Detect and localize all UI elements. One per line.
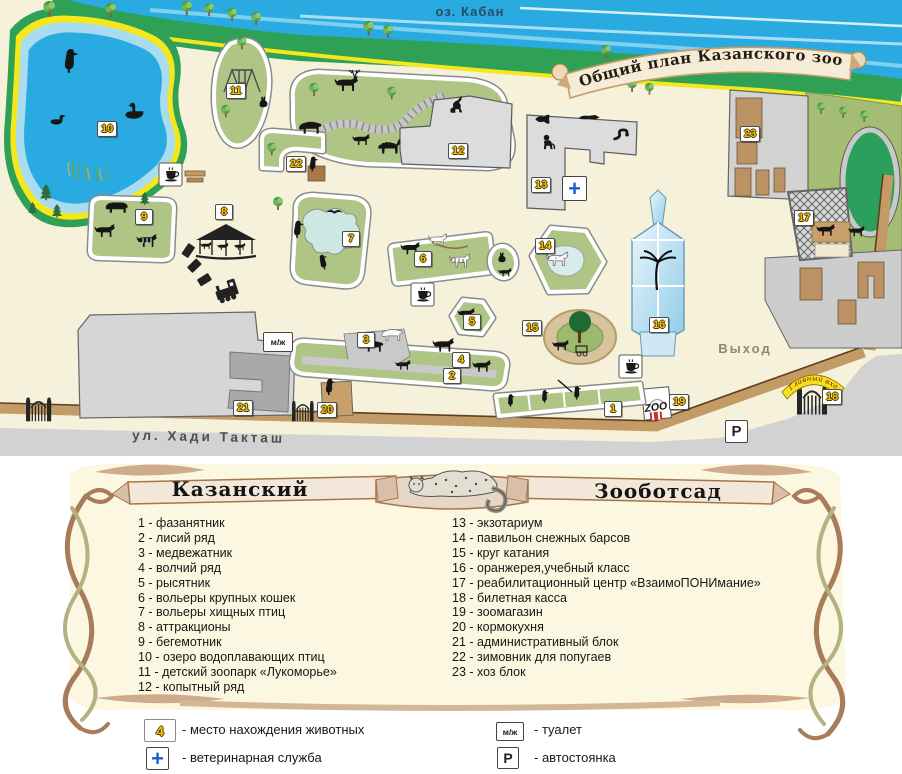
marker-1: 1 xyxy=(604,401,622,417)
marker-12: 12 xyxy=(448,143,468,159)
legend-item: 12 - копытный ряд xyxy=(138,680,337,695)
marker-4: 4 xyxy=(452,352,470,368)
side-gate-icon xyxy=(26,397,51,421)
legend-item: 17 - реабилитационный центр «ВзаимоПОНИм… xyxy=(452,576,761,591)
marker-6: 6 xyxy=(414,251,432,267)
legend-item: 23 - хоз блок xyxy=(452,665,761,680)
riding-circle-15 xyxy=(544,310,616,364)
marker-11: 11 xyxy=(226,83,246,99)
key-toilet-marker: м/ж xyxy=(496,722,524,741)
legend-item: 16 - оранжерея,учебный класс xyxy=(452,561,761,576)
legend-item: 13 - экзотариум xyxy=(452,516,761,531)
key-vet-text: - ветеринарная служба xyxy=(182,750,322,765)
legend-decoration xyxy=(0,456,902,774)
marker-9: 9 xyxy=(135,209,153,225)
legend-title-left: Казанский xyxy=(140,477,340,501)
legend-item: 20 - кормокухня xyxy=(452,620,761,635)
lake-label: оз. Кабан xyxy=(436,4,505,19)
marker-17: 17 xyxy=(794,210,814,226)
coffee-icon xyxy=(411,283,434,306)
marker-18: 18 xyxy=(822,389,842,405)
marker-14: 14 xyxy=(535,238,555,254)
key-animal-marker: 4 xyxy=(144,719,176,742)
map-vet-sign: + xyxy=(562,176,587,201)
street-label: ул. Хади Такташ xyxy=(132,428,285,446)
marker-22: 22 xyxy=(286,156,306,172)
legend-item: 21 - административный блок xyxy=(452,635,761,650)
service-yard xyxy=(765,250,902,348)
legend-item: 11 - детский зоопарк «Лукоморье» xyxy=(138,665,337,680)
legend-item: 15 - круг катания xyxy=(452,546,761,561)
key-animal-text: - место нахождения животных xyxy=(182,722,364,737)
key-vet-marker: + xyxy=(146,747,169,770)
dense-tree-icon xyxy=(569,311,591,333)
key-toilet-text: - туалет xyxy=(534,722,582,737)
marker-19: 19 xyxy=(669,394,689,410)
service-gate-icon xyxy=(292,401,314,421)
map-parking-sign: P xyxy=(725,420,748,443)
map-toilet-sign: м/ж xyxy=(263,332,293,352)
marker-5: 5 xyxy=(463,314,481,330)
legend-list-right: 13 - экзотариум 14 - павильон снежных ба… xyxy=(452,516,761,680)
marker-13: 13 xyxy=(531,177,551,193)
legend-item: 19 - зоомагазин xyxy=(452,605,761,620)
marker-3: 3 xyxy=(357,332,375,348)
legend-item: 14 - павильон снежных барсов xyxy=(452,531,761,546)
key-parking-text: - автостоянка xyxy=(534,750,616,765)
zoo-map-illustration: Общий план Казанского зооботсада Главный… xyxy=(0,0,902,456)
marker-2: 2 xyxy=(443,368,461,384)
legend-list-left: 1 - фазанятник 2 - лисий ряд 3 - медвежа… xyxy=(138,516,337,695)
key-parking-marker: P xyxy=(497,747,519,769)
legend-item: 22 - зимовник для попугаев xyxy=(452,650,761,665)
legend-item: 5 - рысятник xyxy=(138,576,337,591)
zoo-map-page: Общий план Казанского зооботсада Главный… xyxy=(0,0,902,774)
coffee-icon xyxy=(619,355,642,378)
utility-yard-23 xyxy=(728,90,808,200)
legend-item: 4 - волчий ряд xyxy=(138,561,337,576)
marker-21: 21 xyxy=(233,400,253,416)
exit-label: Выход xyxy=(718,341,771,356)
legend-item: 1 - фазанятник xyxy=(138,516,337,531)
legend-item: 8 - аттракционы xyxy=(138,620,337,635)
legend-title-right: Зооботсад xyxy=(558,479,758,503)
marker-16: 16 xyxy=(649,317,669,333)
coffee-icon xyxy=(159,163,182,186)
legend-item: 10 - озеро водоплавающих птиц xyxy=(138,650,337,665)
legend-item: 7 - вольеры хищных птиц xyxy=(138,605,337,620)
legend-item: 2 - лисий ряд xyxy=(138,531,337,546)
marker-10: 10 xyxy=(97,121,117,137)
marker-20: 20 xyxy=(317,402,337,418)
marker-8: 8 xyxy=(215,204,233,220)
legend-item: 9 - бегемотник xyxy=(138,635,337,650)
legend-item: 6 - вольеры крупных кошек xyxy=(138,591,337,606)
marker-23: 23 xyxy=(740,126,760,142)
enclosure-12-hoofed xyxy=(293,72,513,168)
marker-15: 15 xyxy=(522,320,542,336)
marker-7: 7 xyxy=(342,231,360,247)
legend-item: 18 - билетная касса xyxy=(452,591,761,606)
legend-item: 3 - медвежатник xyxy=(138,546,337,561)
